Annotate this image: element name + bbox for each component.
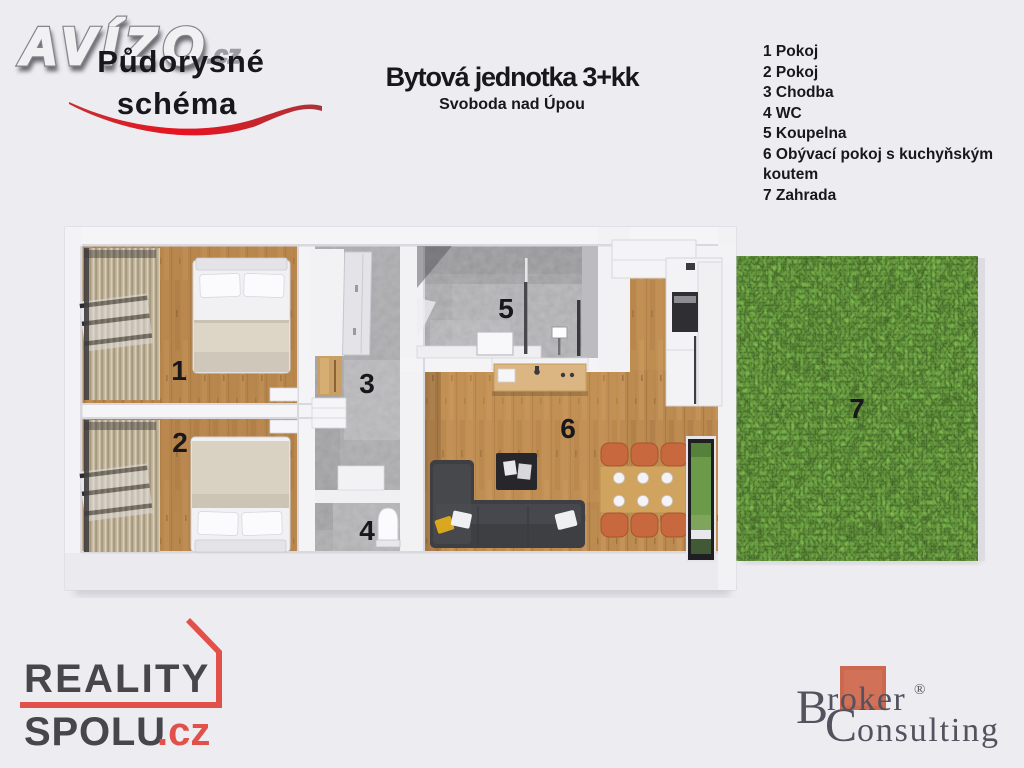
svg-text:1: 1 — [171, 355, 187, 386]
svg-text:C: C — [825, 699, 857, 752]
svg-text:REALITY: REALITY — [24, 657, 211, 701]
svg-text:onsulting: onsulting — [857, 712, 1000, 749]
svg-text:4: 4 — [359, 515, 375, 546]
svg-text:6: 6 — [560, 413, 576, 444]
svg-text:2: 2 — [172, 427, 188, 458]
svg-text:B: B — [796, 681, 828, 734]
svg-text:5: 5 — [498, 293, 514, 324]
svg-text:®: ® — [914, 682, 925, 698]
svg-text:SPOLU: SPOLU — [24, 710, 166, 754]
svg-text:.cz: .cz — [157, 710, 210, 754]
svg-text:3: 3 — [359, 368, 375, 399]
svg-text:7: 7 — [849, 393, 865, 424]
